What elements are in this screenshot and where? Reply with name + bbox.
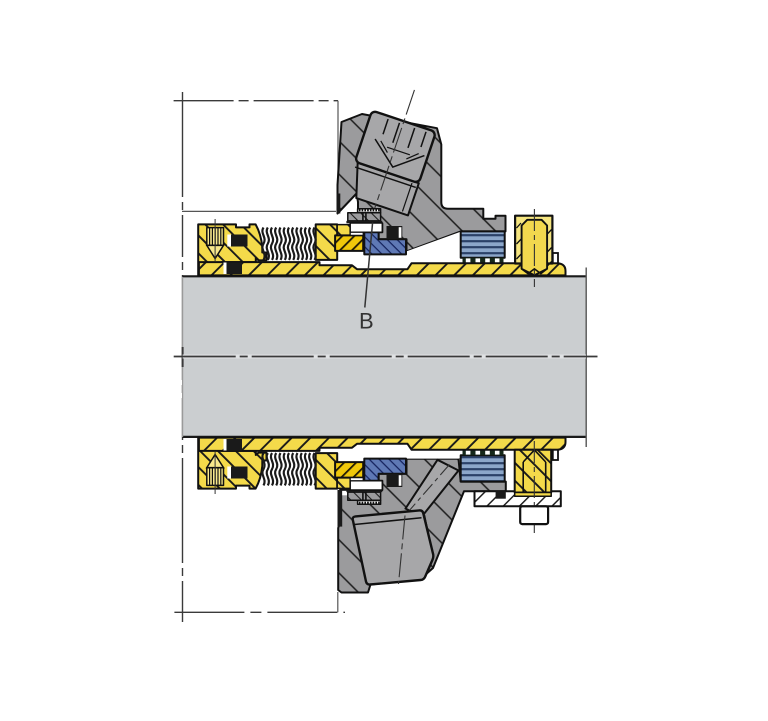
svg-text:B: B — [359, 309, 374, 334]
